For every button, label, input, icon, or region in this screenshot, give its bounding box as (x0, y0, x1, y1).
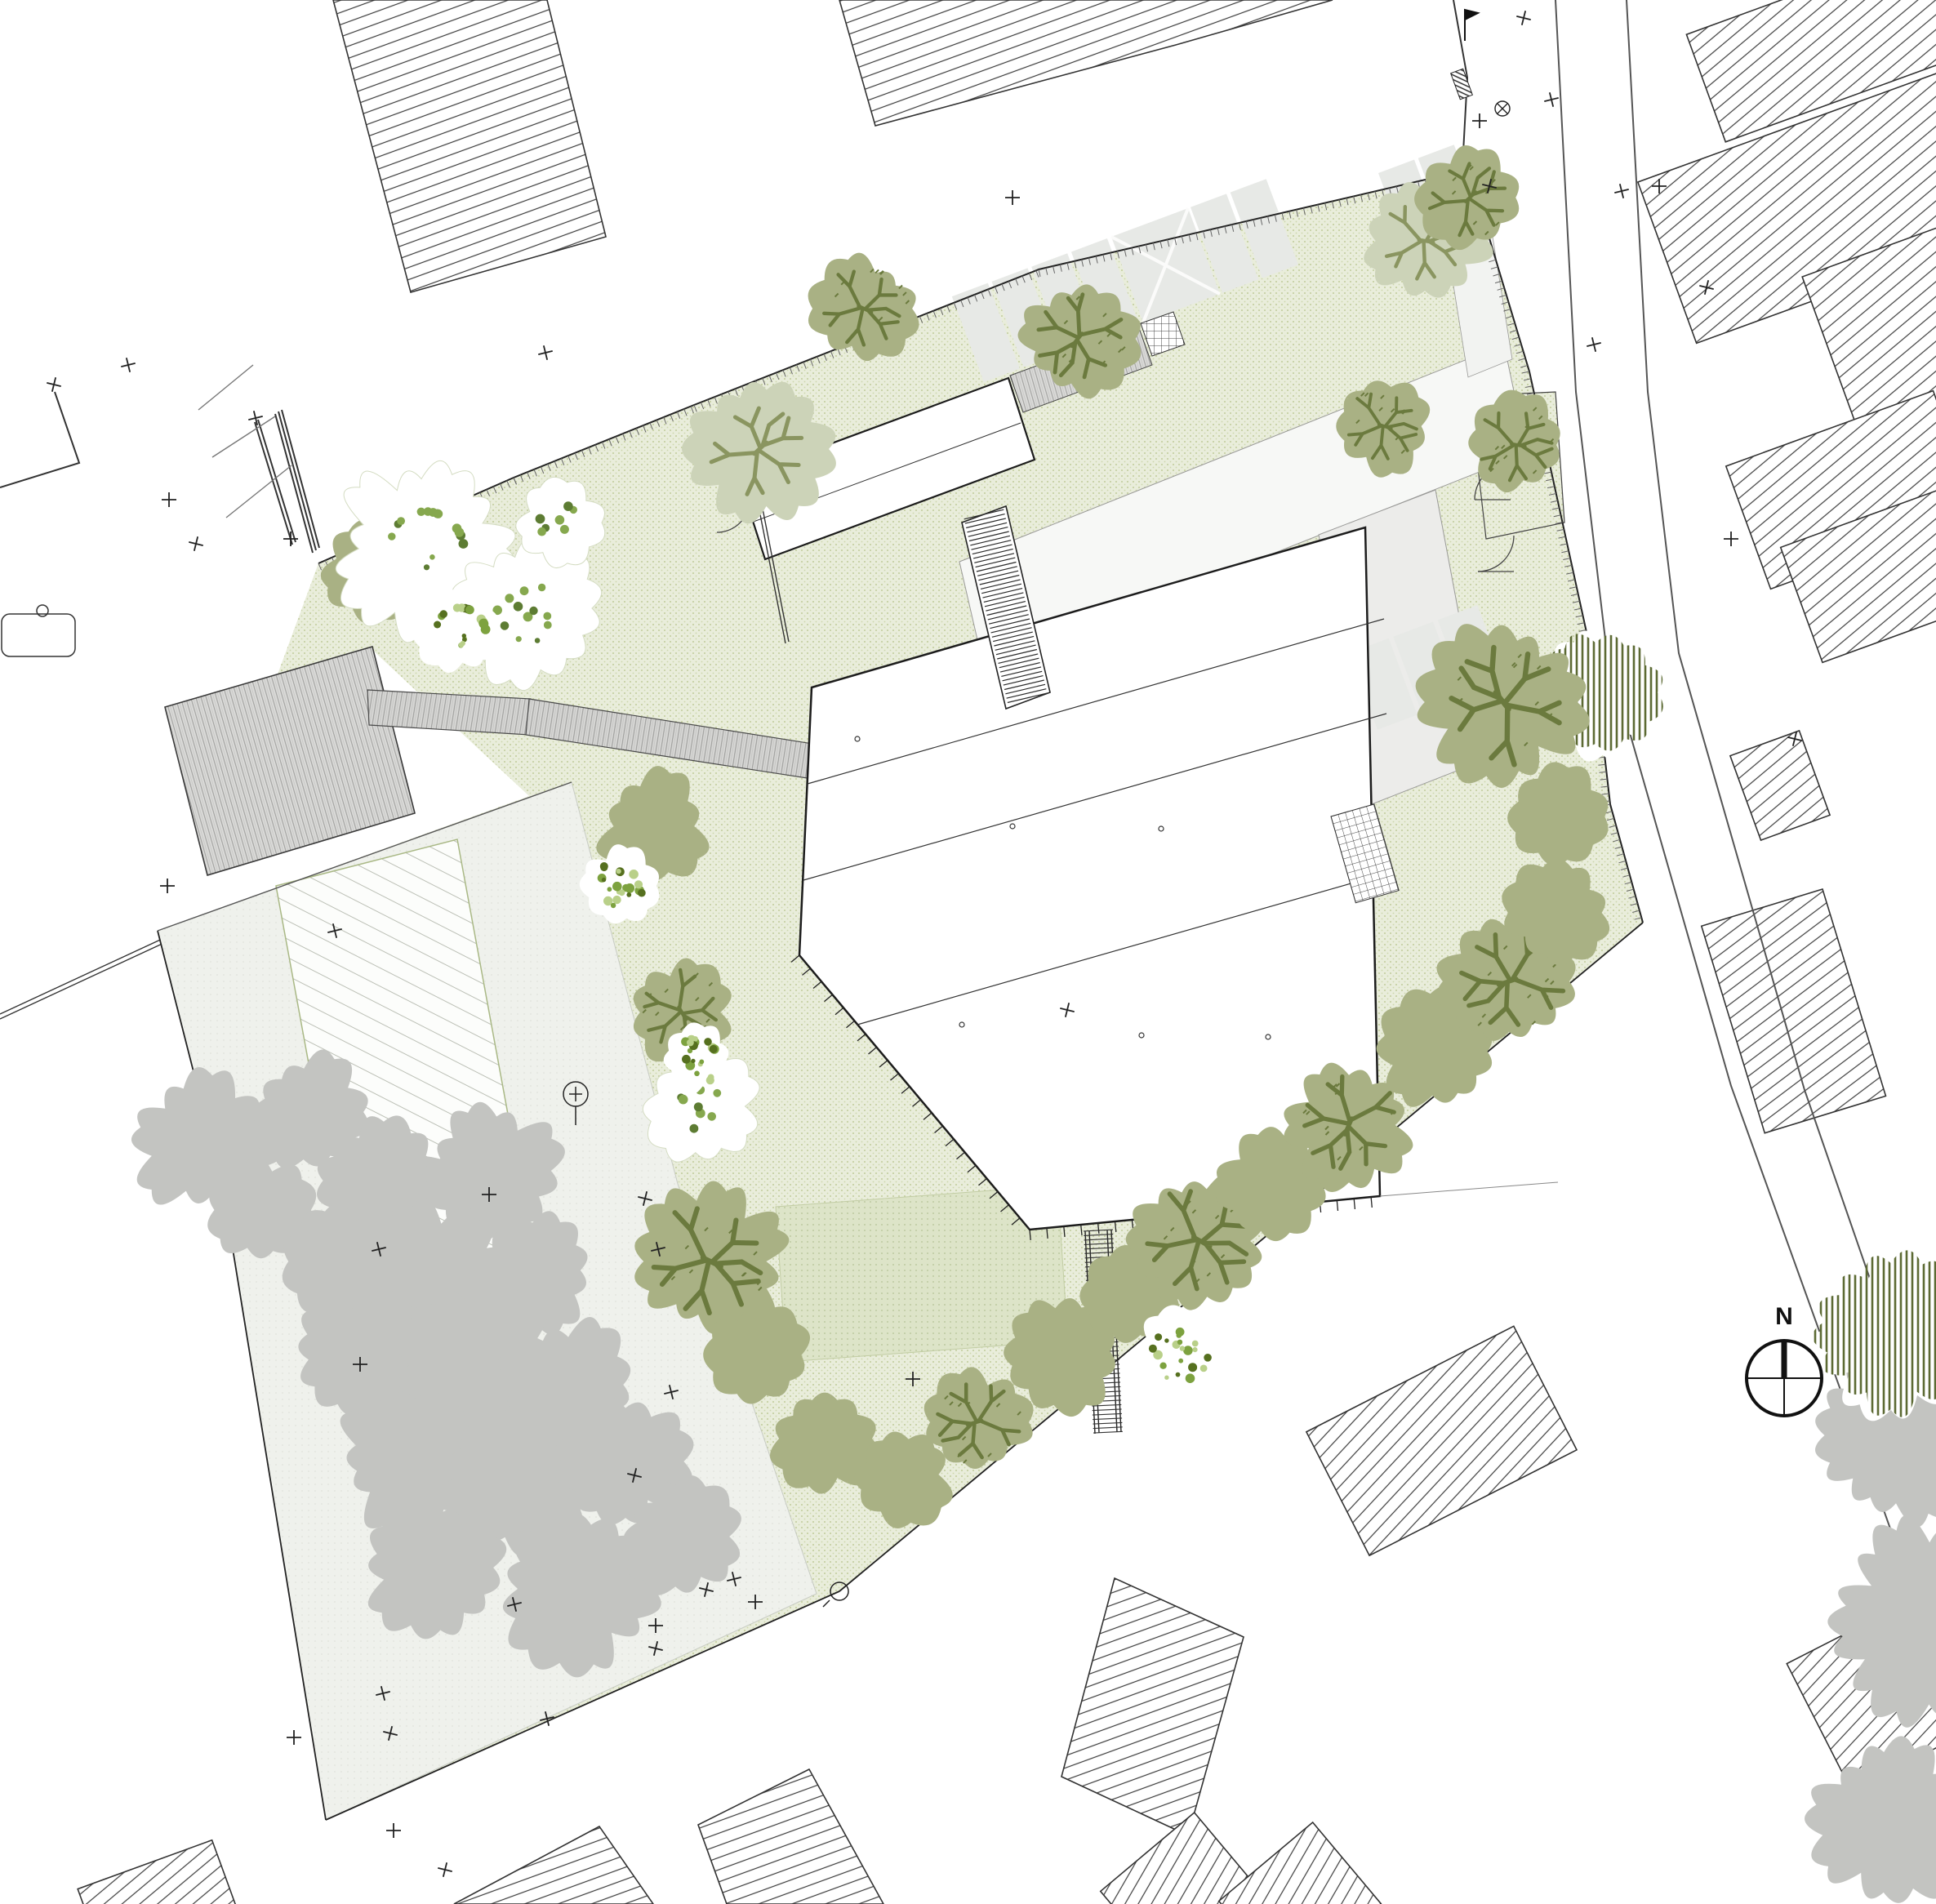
street-furniture (2, 605, 75, 656)
survey-cross (436, 1861, 454, 1879)
context-building-east-3 (1702, 889, 1886, 1133)
flag-symbol (1465, 10, 1478, 41)
survey-cross (283, 532, 298, 546)
survey-cross (536, 344, 554, 362)
survey-cross (1515, 9, 1533, 27)
survey-cross (160, 879, 175, 893)
proposed-tree (808, 253, 919, 362)
survey-cross (1005, 190, 1020, 205)
context-building-south-1 (454, 1826, 653, 1904)
context-building-south-5 (1219, 1822, 1381, 1904)
survey-cross (45, 376, 63, 394)
survey-cross (1585, 336, 1603, 354)
survey-cross (1613, 182, 1631, 200)
context-fence-2 (275, 410, 319, 553)
survey-cross (1472, 113, 1487, 128)
survey-cross (187, 535, 205, 553)
survey-cross (1724, 532, 1738, 546)
gate-symbols (1451, 10, 1510, 116)
context-building-east-2 (1730, 731, 1830, 840)
context-building-southwest (78, 1840, 238, 1904)
survey-cross (287, 1730, 301, 1745)
context-wall-corner (0, 392, 79, 487)
existing-tree-canopy (1805, 1736, 1936, 1903)
utility-marker-circled-x (1495, 101, 1510, 116)
striped-tree (1807, 1250, 1936, 1421)
gate-post-hatched (1451, 69, 1473, 99)
context-building-southeast-1 (1306, 1326, 1577, 1555)
context-building-south-2 (698, 1769, 883, 1904)
context-building-south-3 (1061, 1578, 1244, 1835)
context-building-east-1 (1726, 391, 1936, 663)
north-label: N (1775, 1303, 1793, 1330)
context-building-north (839, 0, 1333, 126)
north-arrow: N (1747, 1303, 1822, 1416)
survey-cross (119, 356, 137, 374)
survey-cross (386, 1823, 401, 1838)
terrace-edge-east (1380, 1182, 1558, 1196)
entrance-deck (165, 647, 415, 875)
site-plan-canvas: N (0, 0, 1936, 1904)
survey-cross (1542, 91, 1560, 109)
context-building-northwest (333, 0, 606, 292)
dotted-shrub (1134, 1305, 1224, 1402)
survey-cross (162, 492, 176, 507)
